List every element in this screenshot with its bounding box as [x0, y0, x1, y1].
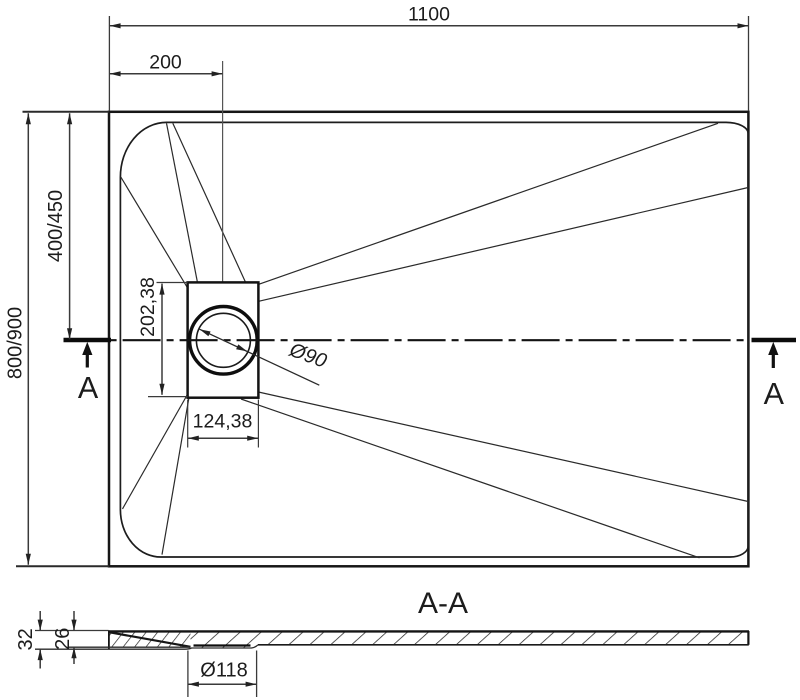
svg-text:A: A: [764, 377, 785, 411]
svg-text:A: A: [78, 371, 99, 405]
svg-text:Ø90: Ø90: [286, 339, 330, 373]
svg-text:800/900: 800/900: [5, 307, 27, 379]
svg-text:26: 26: [52, 628, 74, 650]
svg-text:124,38: 124,38: [193, 410, 253, 432]
svg-text:32: 32: [15, 628, 37, 650]
svg-text:A-A: A-A: [418, 587, 468, 620]
svg-text:400/450: 400/450: [45, 190, 67, 262]
svg-text:202,38: 202,38: [137, 277, 159, 337]
svg-text:1100: 1100: [408, 3, 450, 25]
svg-text:Ø118: Ø118: [200, 660, 247, 682]
svg-text:200: 200: [149, 51, 182, 73]
